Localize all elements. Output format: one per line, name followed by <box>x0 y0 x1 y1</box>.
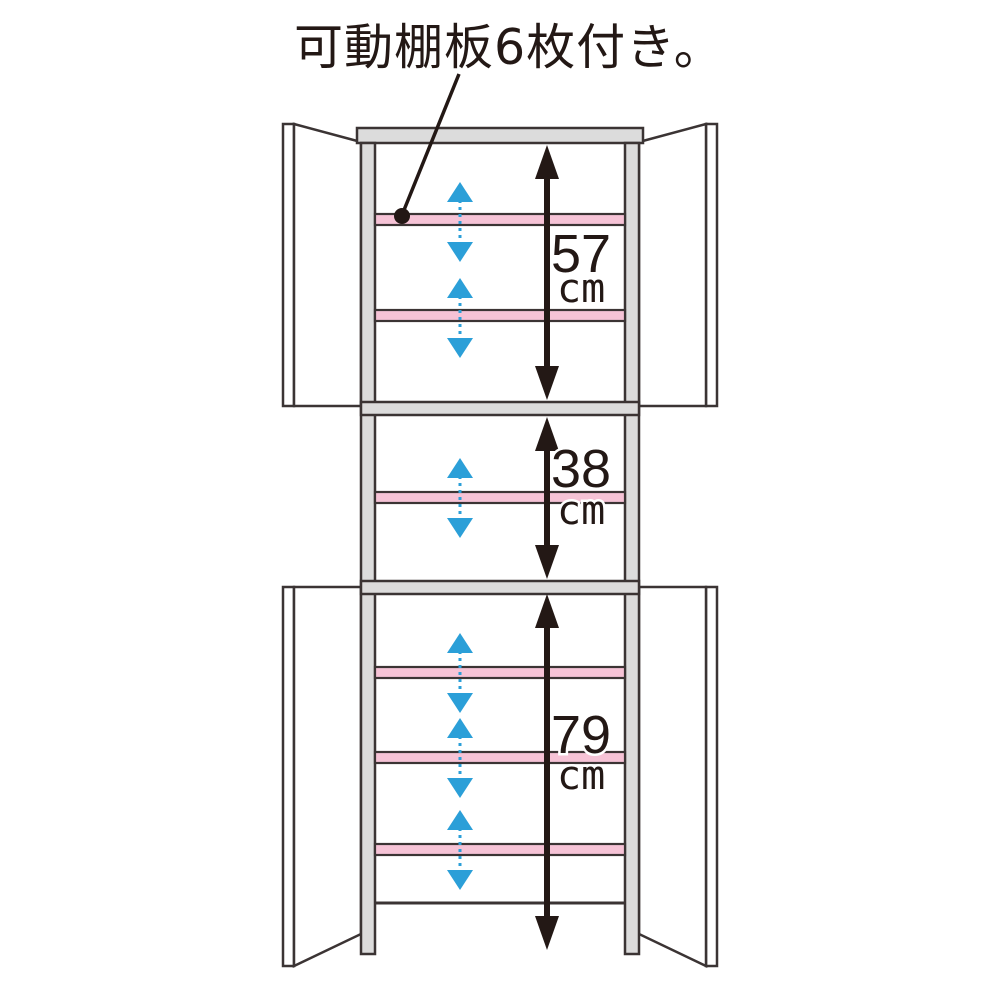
arrow-down-head <box>535 916 559 950</box>
cabinet-right-post <box>625 143 639 954</box>
door-face <box>294 587 361 966</box>
door-face <box>639 124 706 406</box>
door-top-left <box>283 124 361 406</box>
movable-shelf-6 <box>375 844 625 855</box>
cabinet-shelf-diagram: 57 cm 38 cm 79 cm 可動棚板6枚付き。 <box>0 0 1000 1000</box>
arrow-up-head <box>447 718 473 738</box>
dimension-middle: 38 cm <box>535 417 611 579</box>
door-edge <box>283 587 294 966</box>
arrow-up-head <box>535 145 559 179</box>
arrow-down-head <box>447 693 473 713</box>
movable-shelf-4 <box>375 667 625 678</box>
arrow-up-head <box>447 278 473 298</box>
door-face <box>294 124 361 406</box>
dimension-top: 57 cm <box>535 145 611 400</box>
door-edge <box>706 124 717 406</box>
arrow-down-head <box>447 518 473 538</box>
arrow-up-head <box>447 633 473 653</box>
arrow-down-head <box>535 545 559 579</box>
door-edge <box>706 587 717 966</box>
dimension-unit: cm <box>557 488 605 534</box>
fixed-shelf-lower <box>361 581 639 594</box>
callout-line <box>402 74 459 215</box>
door-bottom-right <box>639 587 717 966</box>
door-face <box>639 587 706 966</box>
arrow-down-head <box>447 778 473 798</box>
arrow-down-head <box>447 242 473 262</box>
door-top-right <box>639 124 717 406</box>
diagram-canvas: 57 cm 38 cm 79 cm 可動棚板6枚付き。 <box>0 0 1000 1000</box>
dimension-bottom: 79 cm <box>535 594 611 950</box>
diagram-title: 可動棚板6枚付き。 <box>294 19 724 76</box>
cabinet-top-panel <box>357 128 643 143</box>
dimension-unit: cm <box>557 753 605 799</box>
cabinet-left-post <box>361 143 375 954</box>
arrow-up-head <box>447 810 473 830</box>
dimension-unit: cm <box>557 266 605 312</box>
arrow-down-head <box>447 870 473 890</box>
fixed-shelf-upper <box>361 402 639 415</box>
door-bottom-left <box>283 587 361 966</box>
callout-dot <box>394 208 410 224</box>
door-edge <box>283 124 294 406</box>
arrow-down-head <box>447 338 473 358</box>
arrow-up-head <box>535 594 559 628</box>
arrow-down-head <box>535 366 559 400</box>
arrow-up-head <box>447 458 473 478</box>
arrow-up-head <box>447 182 473 202</box>
